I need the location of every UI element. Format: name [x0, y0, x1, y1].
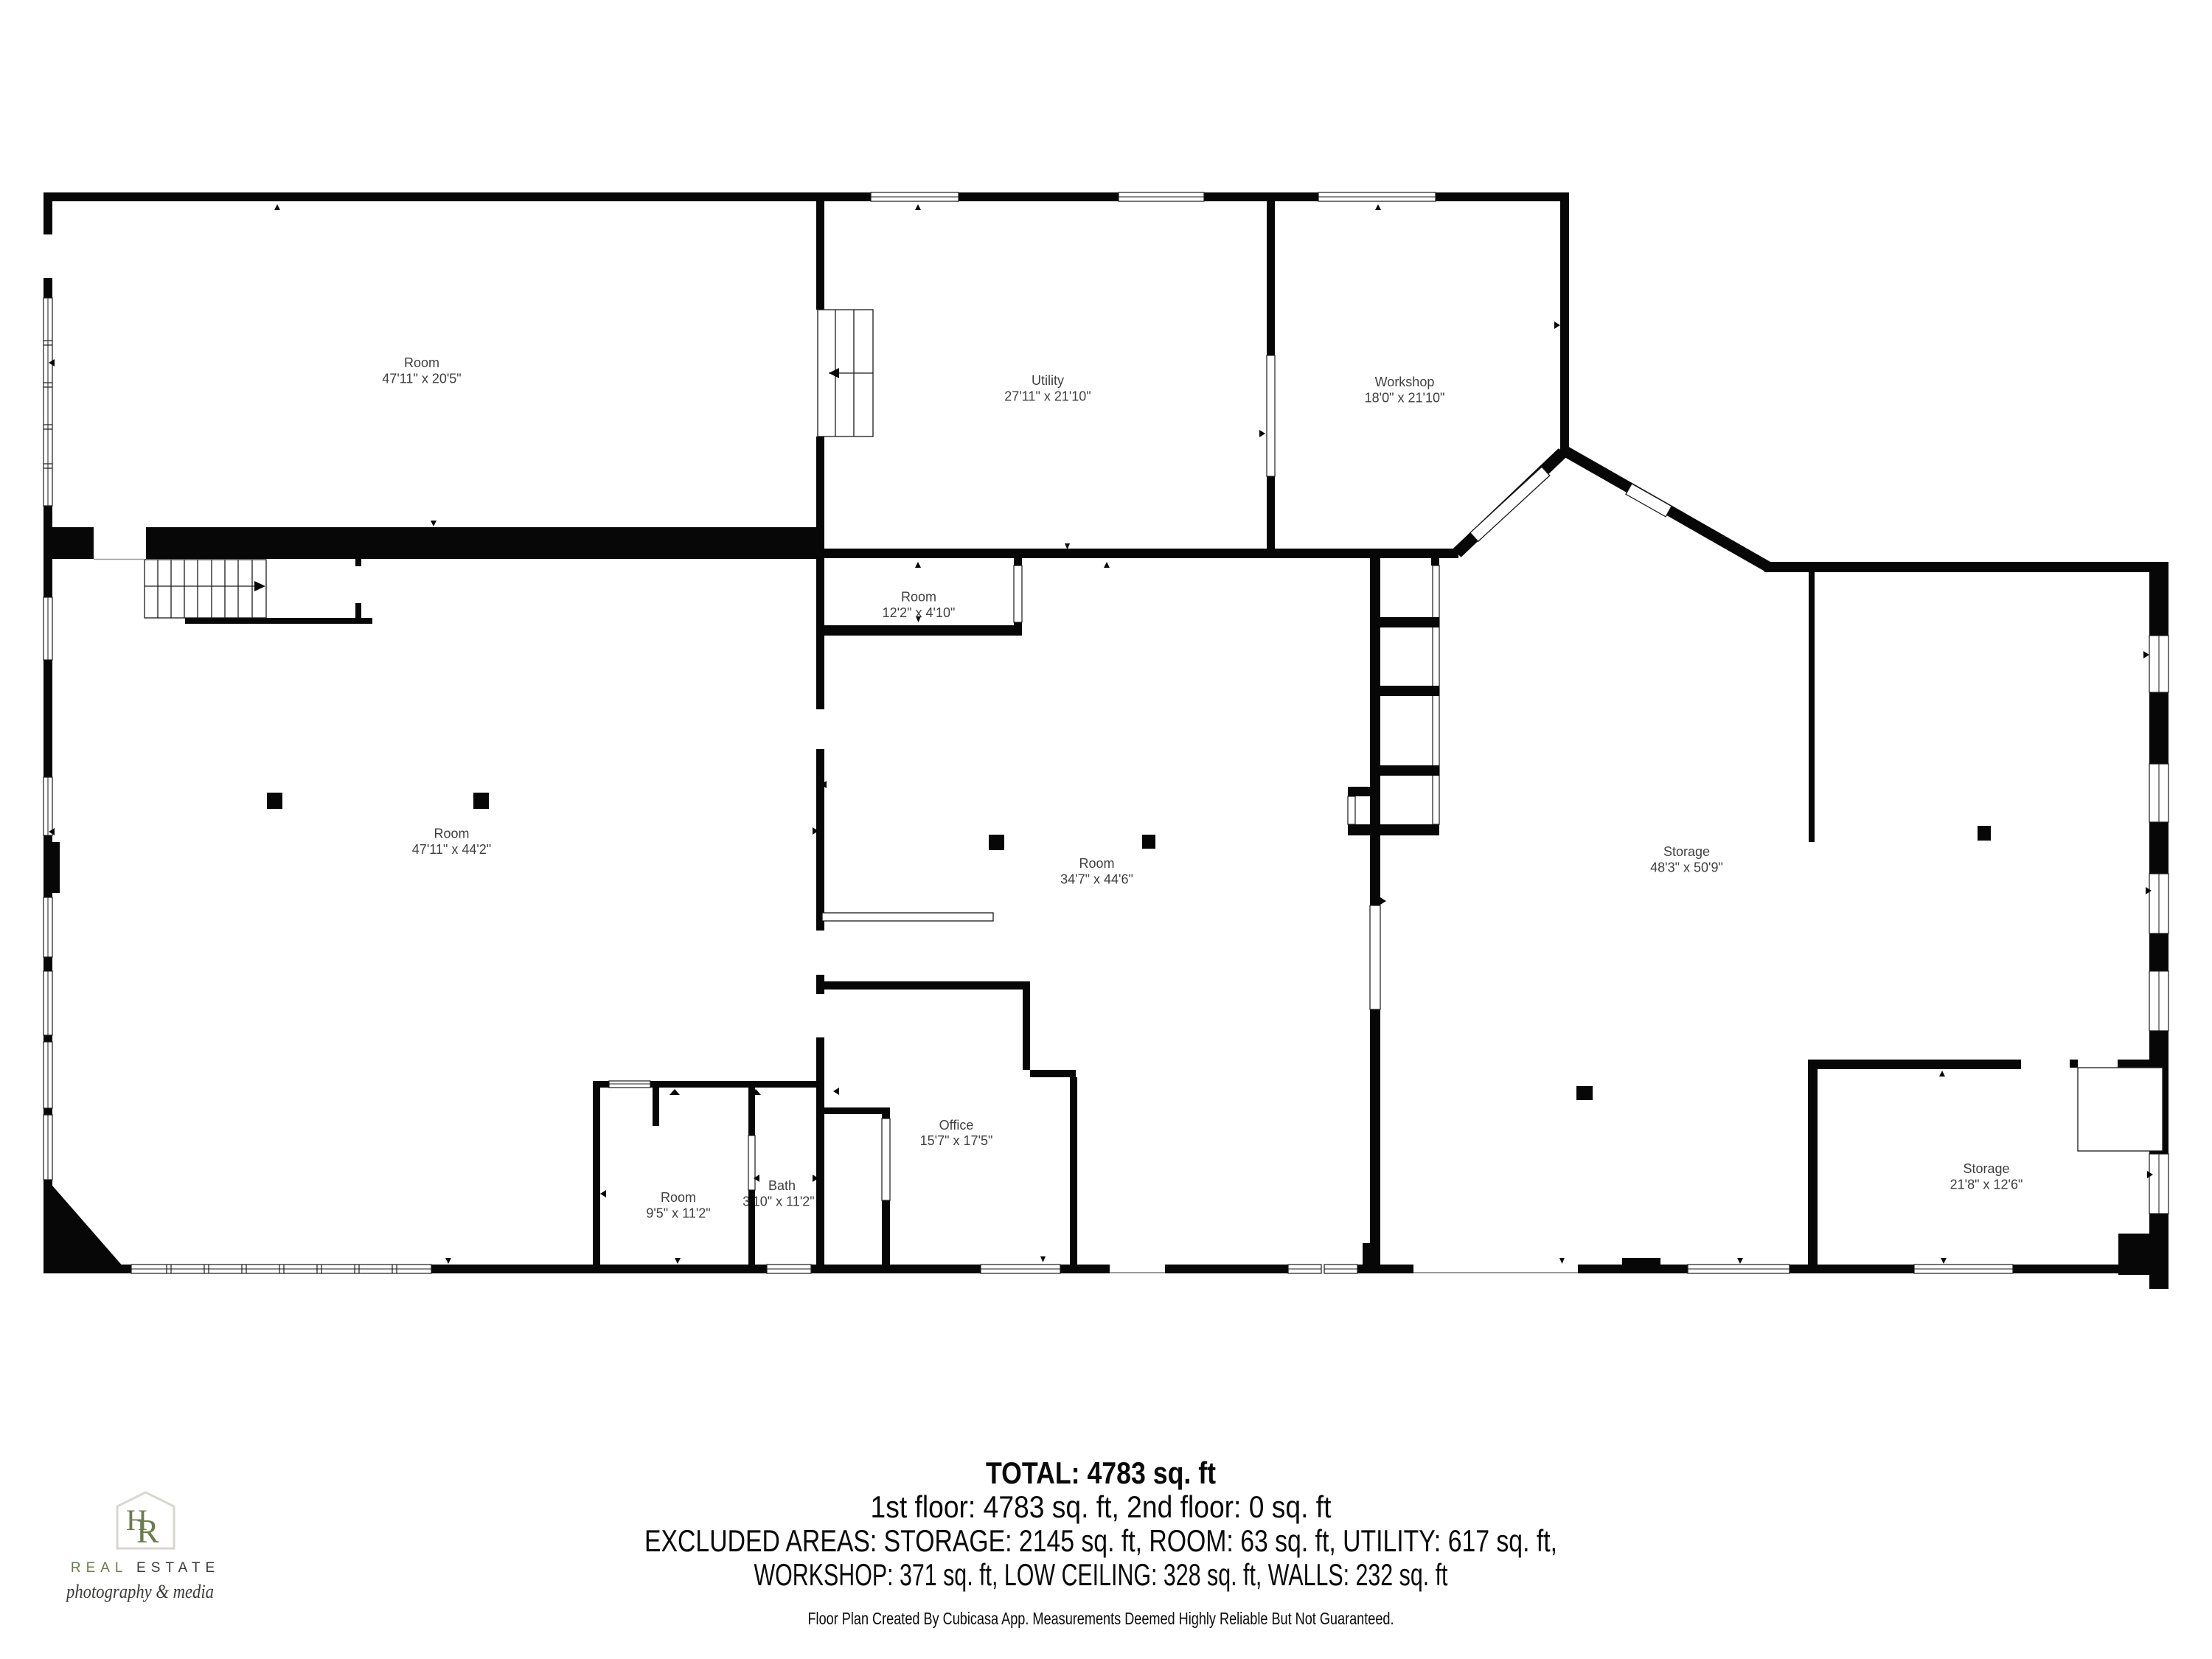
svg-text:21'8" x 12'6": 21'8" x 12'6" [1950, 1178, 2023, 1192]
svg-text:Office: Office [939, 1118, 974, 1133]
svg-text:15'7" x 17'5": 15'7" x 17'5" [920, 1133, 993, 1148]
svg-text:TOTAL: 4783 sq. ft: TOTAL: 4783 sq. ft [986, 1455, 1216, 1490]
svg-text:Storage: Storage [1963, 1161, 2009, 1176]
svg-text:Floor Plan Created By Cubicasa: Floor Plan Created By Cubicasa App. Meas… [808, 1609, 1394, 1628]
svg-text:EXCLUDED AREAS: STORAGE: 2145: EXCLUDED AREAS: STORAGE: 2145 sq. ft, RO… [644, 1523, 1557, 1558]
svg-text:47'11" x 20'5": 47'11" x 20'5" [382, 372, 461, 386]
svg-text:REAL ESTATE: REAL ESTATE [71, 1560, 220, 1576]
svg-text:Room: Room [1079, 856, 1114, 871]
svg-text:Storage: Storage [1663, 844, 1710, 859]
svg-text:18'0" x 21'10": 18'0" x 21'10" [1365, 391, 1445, 406]
svg-text:Workshop: Workshop [1375, 375, 1435, 389]
svg-text:R: R [136, 1512, 159, 1550]
svg-text:Utility: Utility [1032, 373, 1064, 388]
svg-text:12'2" x 4'10": 12'2" x 4'10" [883, 605, 956, 620]
svg-text:Room: Room [661, 1190, 696, 1205]
svg-text:47'11" x 44'2": 47'11" x 44'2" [412, 842, 491, 857]
svg-text:9'5" x 11'2": 9'5" x 11'2" [646, 1206, 710, 1221]
svg-text:Room: Room [901, 590, 936, 605]
svg-text:Bath: Bath [768, 1178, 796, 1193]
svg-text:Room: Room [404, 355, 439, 370]
svg-text:48'3" x 50'9": 48'3" x 50'9" [1650, 860, 1723, 875]
svg-text:27'11" x 21'10": 27'11" x 21'10" [1004, 389, 1091, 404]
svg-text:Room: Room [434, 827, 469, 841]
svg-text:34'7" x 44'6": 34'7" x 44'6" [1060, 872, 1133, 887]
svg-text:WORKSHOP: 371 sq. ft, LOW CEIL: WORKSHOP: 371 sq. ft, LOW CEILING: 328 s… [754, 1557, 1448, 1592]
svg-text:photography & media: photography & media [65, 1581, 214, 1602]
svg-text:1st floor: 4783 sq. ft, 2nd fl: 1st floor: 4783 sq. ft, 2nd floor: 0 sq.… [871, 1489, 1332, 1524]
